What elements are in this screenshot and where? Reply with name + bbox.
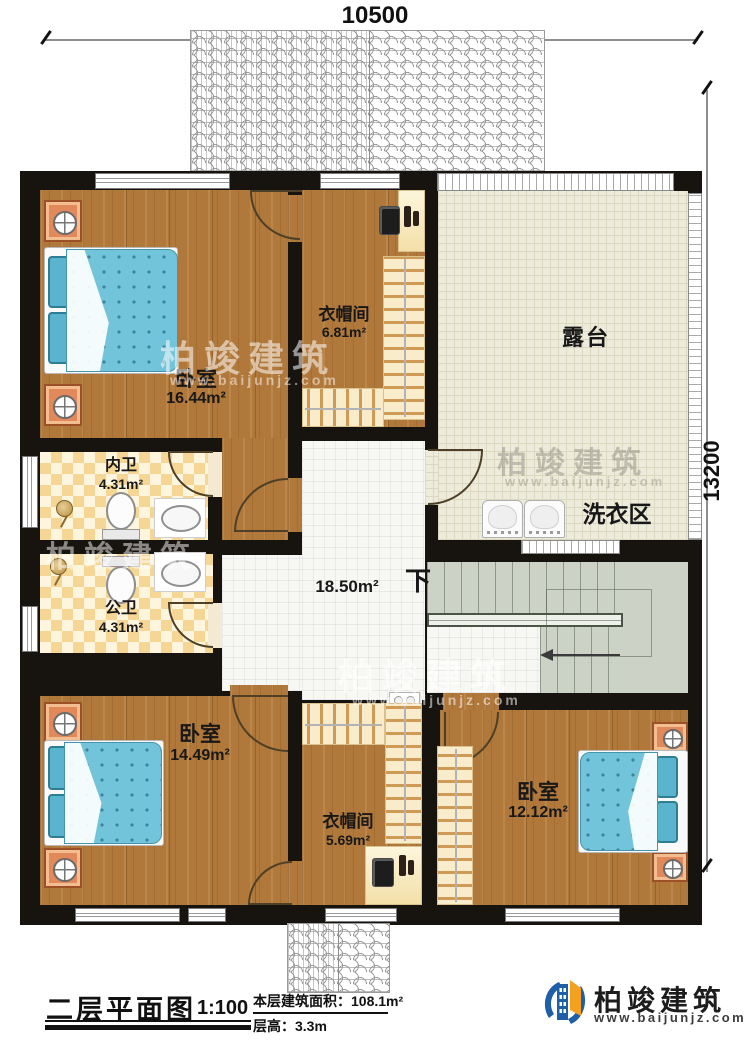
nightstand [652, 852, 688, 882]
bedroom2-label: 卧室 [150, 724, 250, 746]
lamp-icon [663, 859, 683, 879]
stairs-down-label: 下 [400, 568, 436, 595]
company-logo-icon [543, 974, 587, 1030]
appliance-icon [372, 858, 394, 887]
roof-overhang-bottom [287, 923, 390, 993]
bath-inner-label: 内卫 [71, 458, 171, 475]
roof-divider [369, 31, 370, 171]
terrace-railing-right [688, 193, 702, 540]
bottle-icon [413, 211, 419, 226]
bedroom3-area: 12.12m² [488, 805, 588, 822]
hall-floor-left [222, 555, 302, 691]
title-underline-thin [45, 1020, 251, 1022]
nightstand [44, 200, 82, 242]
dimension-tick [692, 30, 704, 45]
roof-divider [338, 924, 339, 992]
bed-sheet [581, 753, 657, 850]
window [505, 908, 620, 922]
watermark-url: www.baijunjz.com [170, 372, 339, 388]
door-leaf [232, 695, 288, 697]
door-leaf [248, 903, 292, 905]
door-leaf [428, 449, 483, 451]
lamp-icon [663, 729, 683, 749]
window [325, 908, 397, 922]
floor-area-text: 本层建筑面积：108.1m² [253, 991, 403, 1011]
bed-sheet [65, 743, 161, 843]
nightstand [44, 848, 82, 888]
mattress [580, 752, 658, 851]
wardrobe [437, 746, 473, 905]
watermark-url: www.baijunjz.com [505, 474, 665, 489]
terrace-railing-top [437, 173, 674, 191]
bedroom3-label: 卧室 [488, 782, 588, 804]
cloakroom2-label: 衣帽间 [298, 813, 398, 831]
stair-void-outline [546, 589, 652, 657]
wardrobe [302, 388, 384, 427]
nightstand [44, 702, 82, 742]
window [22, 606, 38, 652]
floor-height-text: 层高：3.3m [253, 1016, 327, 1036]
bath-public-area: 4.31m² [71, 620, 171, 635]
window [188, 908, 226, 922]
window [22, 456, 38, 528]
drawing-scale: 1:100 [197, 997, 248, 1020]
watermark-url: www.baijunjz.com [352, 692, 521, 708]
mattress [64, 742, 162, 844]
washing-machine [482, 500, 523, 538]
stair-railing [521, 540, 620, 554]
dimension-top-label: 10500 [300, 2, 450, 30]
stair-direction-arrow [540, 649, 553, 661]
lamp-icon [53, 712, 77, 736]
vanity-desk [398, 190, 425, 252]
bath-inner-area: 4.31m² [71, 477, 171, 492]
cloakroom1-label: 衣帽间 [294, 306, 394, 324]
dimension-right-label: 13200 [699, 431, 725, 511]
nightstand [652, 722, 688, 752]
bedroom1-area: 16.44m² [146, 391, 246, 408]
hall-area: 18.50m² [297, 578, 397, 596]
cloakroom2-area: 5.69m² [298, 833, 398, 848]
window [75, 908, 180, 922]
bottle-icon [399, 855, 406, 876]
stair-direction-line [553, 654, 620, 656]
company-website: www.baijunjz.com [594, 1010, 746, 1025]
washing-machine [524, 500, 565, 538]
sink-basin-icon [161, 505, 201, 532]
laundry-label: 洗衣区 [562, 502, 672, 526]
roof-overhang-top [190, 30, 545, 172]
pillow [656, 756, 678, 798]
bottle-icon [404, 206, 411, 227]
title-underline-thick [45, 1025, 251, 1030]
shower-icon [56, 500, 73, 517]
bath-public-label: 公卫 [71, 601, 171, 618]
lamp-icon [53, 858, 77, 882]
door-leaf [234, 530, 288, 532]
bottle-icon [408, 860, 414, 875]
toilet-icon [106, 492, 136, 530]
doorway [288, 478, 302, 532]
window [95, 173, 230, 189]
floor-plan-page: 10500 13200 [0, 0, 750, 1042]
door-leaf [168, 451, 213, 453]
door-leaf [168, 602, 213, 604]
appliance-icon [379, 206, 400, 235]
door-leaf [250, 190, 302, 192]
lamp-icon [53, 211, 77, 235]
wardrobe [302, 703, 385, 745]
nightstand [44, 384, 82, 426]
window [320, 173, 400, 189]
bedroom2-area: 14.49m² [150, 748, 250, 765]
roof-tile-texture [191, 31, 369, 171]
title-block-divider [253, 1012, 388, 1014]
terrace-label: 露台 [536, 326, 636, 349]
watermark-text: 柏竣建筑 [46, 532, 198, 576]
pillow [656, 801, 678, 843]
dimension-tick [40, 30, 52, 45]
roof-tile-texture [288, 924, 338, 992]
lamp-icon [53, 395, 77, 419]
